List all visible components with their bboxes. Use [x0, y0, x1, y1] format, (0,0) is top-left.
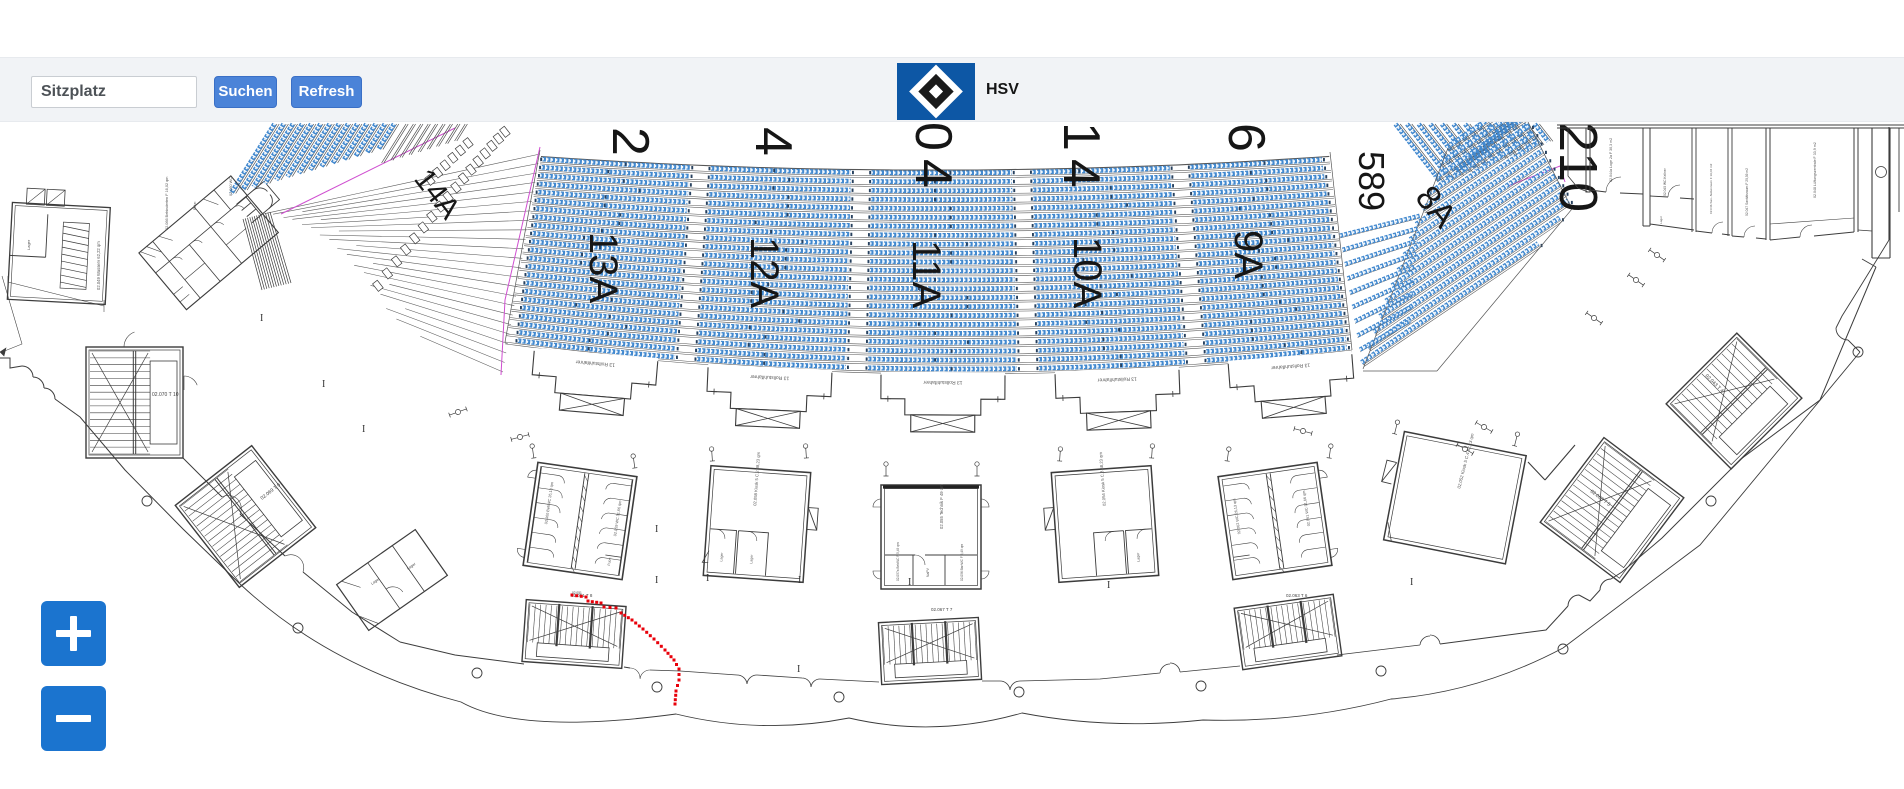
svg-text:I: I: [322, 379, 325, 390]
svg-text:02.046 San.-Nebenraum F 16,02: 02.046 San.-Nebenraum F 16,02 m2: [1709, 163, 1713, 214]
svg-text:Putzr.: Putzr.: [193, 201, 197, 210]
svg-text:NaPV: NaPV: [926, 567, 930, 577]
svg-text:589: 589: [1351, 151, 1392, 211]
svg-text:14: 14: [1052, 122, 1110, 196]
svg-text:02.047 Sanitätsraum F 20,59 m2: 02.047 Sanitätsraum F 20,59 m2: [1745, 168, 1749, 216]
svg-text:11A: 11A: [904, 240, 948, 309]
svg-text:210: 210: [1548, 122, 1608, 212]
svg-text:9A: 9A: [1226, 230, 1270, 279]
svg-text:13A: 13A: [581, 232, 625, 303]
svg-text:Lager: Lager: [1136, 552, 1141, 562]
svg-text:4: 4: [744, 127, 802, 156]
svg-text:Lager: Lager: [719, 551, 724, 561]
svg-text:02.056 BarrWC F 5,49 qm: 02.056 BarrWC F 5,49 qm: [960, 543, 964, 581]
svg-text:02.045 WC Kellner: 02.045 WC Kellner: [1663, 167, 1667, 196]
svg-text:I: I: [1410, 577, 1413, 588]
svg-text:02.067 T 7: 02.067 T 7: [931, 607, 953, 612]
svg-text:I: I: [798, 575, 801, 586]
svg-text:I: I: [655, 575, 658, 586]
svg-text:02.055 Technik F 49 qm: 02.055 Technik F 49 qm: [939, 484, 944, 529]
svg-text:I: I: [908, 577, 911, 588]
svg-text:Lager: Lager: [749, 554, 754, 564]
svg-text:02.063 T 6: 02.063 T 6: [1286, 593, 1308, 598]
svg-text:02.051: 02.051: [572, 591, 582, 595]
svg-text:02.070 T 10: 02.070 T 10: [152, 392, 179, 398]
svg-text:04: 04: [904, 122, 962, 196]
svg-text:I: I: [706, 573, 709, 584]
svg-text:02.060 WC: 02.060 WC: [229, 177, 233, 196]
svg-text:I: I: [1107, 580, 1110, 591]
svg-text:2: 2: [601, 127, 659, 156]
svg-text:02.044a Loge 2a F 30,3 m2: 02.044a Loge 2a F 30,3 m2: [1609, 138, 1613, 182]
svg-text:02.049 Wasserv 62,22 qm: 02.049 Wasserv 62,22 qm: [96, 241, 101, 290]
svg-text:I: I: [362, 424, 365, 435]
svg-text:02.048 Lüftungszentrale F 33,9: 02.048 Lüftungszentrale F 33,9 m2: [1813, 142, 1817, 198]
svg-text:Lager: Lager: [1659, 216, 1663, 224]
svg-text:I: I: [260, 313, 263, 324]
svg-text:02.066 Behinderten F 16,02 qm: 02.066 Behinderten F 16,02 qm: [165, 177, 169, 230]
svg-text:6: 6: [1217, 123, 1275, 152]
svg-text:12A: 12A: [742, 237, 786, 308]
svg-text:I: I: [797, 664, 800, 675]
svg-text:13 Rollstuhlfahrer: 13 Rollstuhlfahrer: [923, 379, 963, 385]
svg-text:I: I: [655, 524, 658, 535]
svg-text:02.057a BehWC F 5,49 qm: 02.057a BehWC F 5,49 qm: [896, 542, 900, 581]
svg-text:Lager: Lager: [26, 239, 31, 250]
svg-text:10A: 10A: [1065, 237, 1109, 308]
